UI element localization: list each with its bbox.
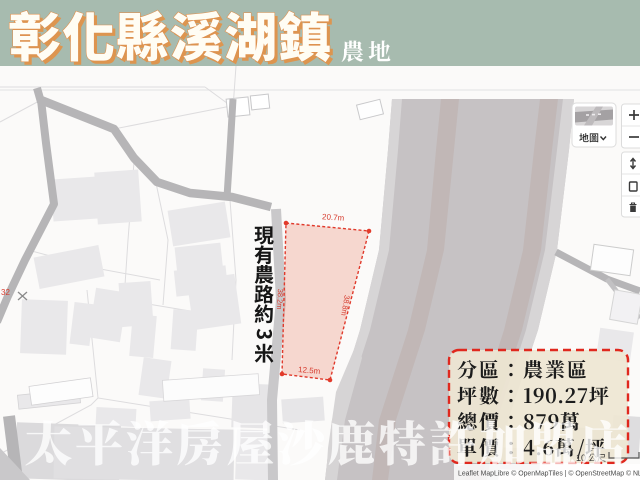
svg-text:Leaflet MapLibre © OpenMapTi: Leaflet MapLibre © OpenMapTiles | © Open…	[458, 470, 640, 478]
svg-text:20.7m: 20.7m	[322, 212, 345, 223]
svg-text:38.2m: 38.2m	[275, 288, 285, 309]
svg-text:32: 32	[1, 288, 10, 297]
